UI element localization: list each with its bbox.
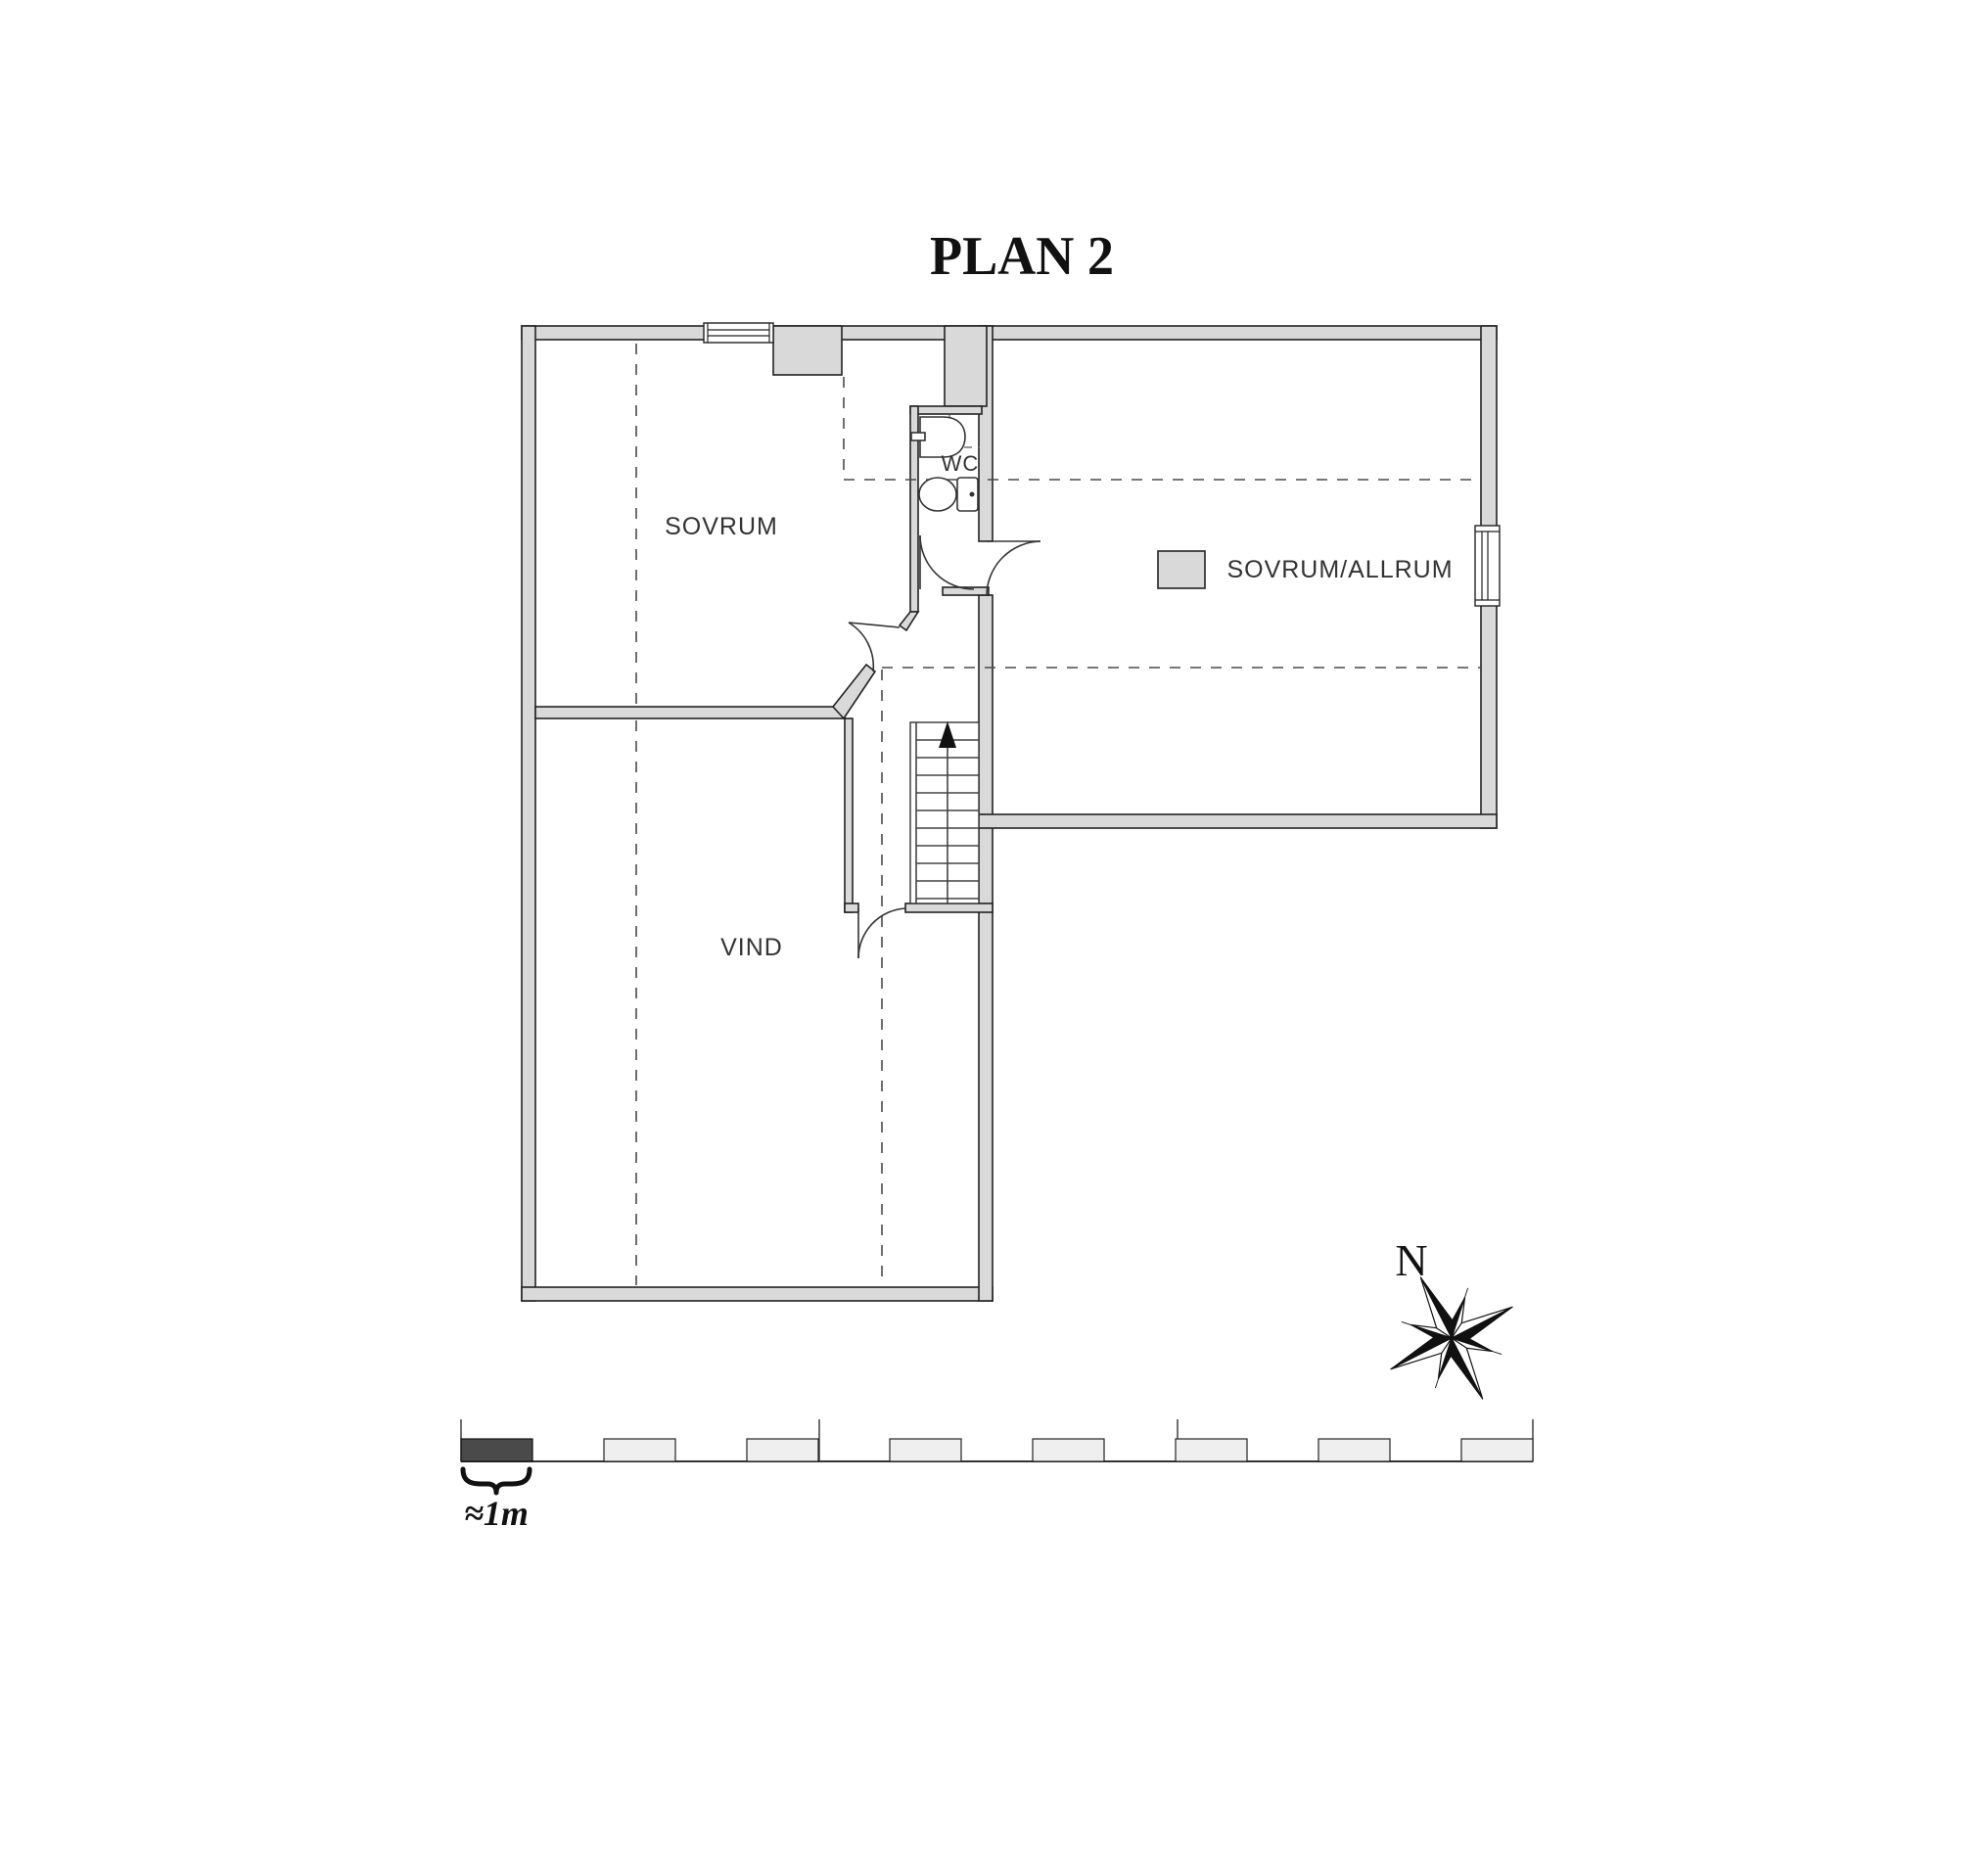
room-label-wc: WC xyxy=(942,451,980,476)
wall-wc-north xyxy=(910,406,982,414)
room-label-vind: VIND xyxy=(720,934,783,961)
chimney-symbol xyxy=(1158,551,1205,588)
wall-left xyxy=(522,326,535,1301)
scale-label: ≈1m xyxy=(464,1494,529,1533)
wall-wc-jog xyxy=(900,612,918,630)
wall-landing-west xyxy=(845,718,853,912)
floorplan-canvas: PLAN 2 xyxy=(0,0,1988,1850)
scale-box xyxy=(1318,1439,1390,1461)
scale-box xyxy=(604,1439,675,1461)
wall-diagonal xyxy=(833,665,875,718)
window-right xyxy=(1475,526,1500,606)
wall-corridor-lower xyxy=(979,595,993,1301)
brace-icon xyxy=(463,1469,530,1493)
compass-rose-icon xyxy=(1360,1246,1544,1430)
room-label-sovrum-allrum: SOVRUM/ALLRUM xyxy=(1226,556,1453,583)
compass-north-label: N xyxy=(1395,1235,1427,1285)
walls xyxy=(522,326,1497,1301)
door-sovrum xyxy=(849,623,900,671)
stair-outline xyxy=(910,722,979,903)
scale-bar: ≈1m xyxy=(461,1419,1533,1533)
scale-box xyxy=(1176,1439,1247,1461)
compass: N xyxy=(1360,1235,1544,1430)
door-wc xyxy=(920,535,974,589)
toilet-icon xyxy=(919,478,978,511)
window-top xyxy=(704,323,773,343)
wall-notch-block xyxy=(773,326,842,375)
wall-bottom-right-room xyxy=(979,814,1497,828)
staircase xyxy=(910,721,979,903)
wall-mass-above-wc xyxy=(945,326,987,406)
wall-top xyxy=(522,326,1497,340)
door-vind xyxy=(858,908,905,958)
wall-sovrum-vind xyxy=(535,707,845,718)
scale-box xyxy=(1033,1439,1104,1461)
wall-bottom-vind xyxy=(522,1287,993,1301)
scale-box xyxy=(747,1439,818,1461)
room-label-sovrum: SOVRUM xyxy=(665,513,778,540)
wall-stair-bottom xyxy=(905,903,993,912)
page-title: PLAN 2 xyxy=(930,226,1114,287)
scale-box-dark xyxy=(461,1439,532,1461)
scale-box xyxy=(890,1439,961,1461)
door-sovrum-allrum xyxy=(986,541,1040,596)
wall-jamb-stub xyxy=(845,903,858,912)
scale-box xyxy=(1461,1439,1533,1461)
floorplan-page: PLAN 2 xyxy=(0,0,1988,1850)
